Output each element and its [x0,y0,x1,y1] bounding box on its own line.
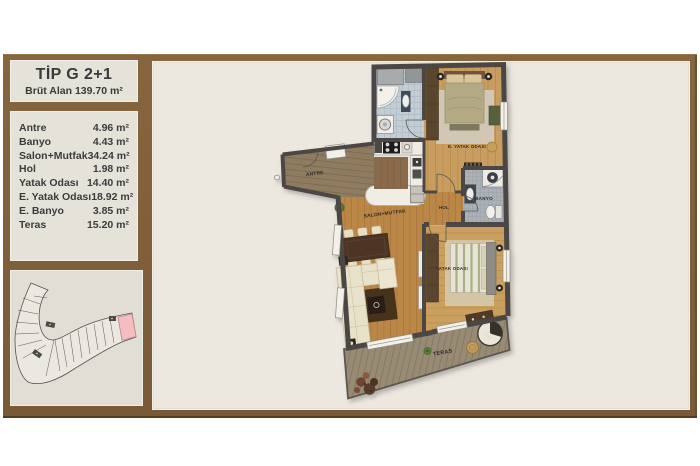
doorbell-marker [275,175,280,180]
oven-icon [375,141,383,153]
bed-icon [444,71,485,131]
label-banyo: BANYO [475,196,493,201]
room-area-row: Hol1.98 m² [19,163,129,177]
chest-icon [489,106,500,125]
kitchen-area [366,141,426,206]
floorplan: ANTRE SALON+MUTFAK HOL BANYO E. YATAK OD… [152,61,690,410]
dishwasher-icon [413,170,422,179]
shower-icon [483,169,504,188]
room-area-row: Yatak Odası14.40 m² [19,177,129,191]
room-area: 34.24 m² [88,150,130,164]
room-label: Teras [19,219,46,233]
room-area: 18.92 m² [91,191,133,205]
wardrobe-icon [427,68,439,140]
coffee-table-icon [367,296,386,315]
room-area: 4.96 m² [93,122,129,136]
shaft [406,68,422,83]
room-label: Yatak Odası [19,177,79,191]
washing-machine-icon [377,116,394,134]
room-label: Salon+Mutfak [19,150,88,164]
page: { "panel": { "title": "TİP G 2+1", "subt… [0,0,700,466]
room-area-row: Teras15.20 m² [19,219,129,233]
room-area: 14.40 m² [87,177,129,191]
room-label: Hol [19,163,36,177]
pouf-icon [487,142,497,152]
room-area-list: Antre4.96 m² Banyo4.43 m² Salon+Mutfak34… [10,111,138,261]
round-table-icon [478,321,502,345]
room-area: 4.43 m² [93,136,129,150]
room-label: E. Yatak Odası [19,191,91,205]
plant-icon [424,347,431,354]
brochure-frame: TİP G 2+1 Brüt Alan 139.70 m² Antre4.96 … [3,54,697,418]
plan-subtitle: Brüt Alan 139.70 m² [10,85,138,97]
room-area: 3.85 m² [93,205,129,219]
building-keyplan-box [10,270,143,406]
room-label: E. Banyo [19,205,64,219]
sink-icon [466,188,473,200]
label-e-yatak-odasi: E. YATAK ODASI [448,144,486,149]
room-label: Antre [19,122,46,136]
stool-icon [467,342,479,354]
building-keyplan [10,270,143,406]
plan-title: TİP G 2+1 [10,66,138,84]
room-area: 15.20 m² [87,219,129,233]
room-area-row: Antre4.96 m² [19,122,129,136]
stove-icon [383,141,400,154]
sink-icon [402,95,409,107]
tv-unit-icon [419,286,423,309]
floorplan-canvas: ANTRE SALON+MUTFAK HOL BANYO E. YATAK OD… [152,61,690,410]
fridge-icon [411,186,425,203]
plan-title-box: TİP G 2+1 Brüt Alan 139.70 m² [10,60,138,102]
kitchen-island [375,158,408,189]
toilet-icon [486,205,502,218]
sink-icon [402,141,412,153]
label-yatak-odasi: YATAK ODASI [436,266,468,271]
building [275,65,510,399]
label-hol: HOL [439,205,449,210]
tv-unit-icon [419,251,423,277]
room-area-row: E. Yatak Odası18.92 m² [19,191,129,205]
room-area-row: E. Banyo3.85 m² [19,205,129,219]
room-area-row: Banyo4.43 m² [19,136,129,150]
shaft [378,68,404,85]
room-area: 1.98 m² [93,163,129,177]
room-label: Banyo [19,136,51,150]
room-area-row: Salon+Mutfak34.24 m² [19,150,129,164]
